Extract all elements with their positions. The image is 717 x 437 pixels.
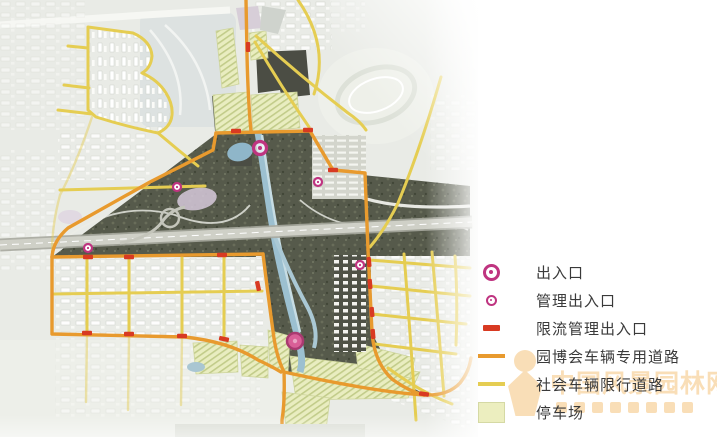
flow-limit-marker	[231, 129, 241, 133]
legend-label: 限流管理出入口	[536, 318, 648, 339]
flow-limit-marker	[82, 331, 92, 335]
flow-limit-marker	[217, 253, 227, 257]
flow-limit-marker	[369, 307, 374, 317]
legend-label: 管理出入口	[536, 290, 616, 311]
public-road-icon	[478, 382, 505, 386]
parking-lot-icon	[478, 402, 505, 423]
expo-road-icon	[478, 354, 505, 358]
flow-limit-marker	[177, 334, 187, 338]
flow-limit-marker	[124, 332, 134, 336]
flow-limit-marker	[303, 128, 313, 132]
flow-limit-icon	[483, 325, 500, 331]
flow-limit-marker	[83, 255, 93, 259]
legend-row-main-entrance: 出入口	[476, 258, 716, 286]
legend-label: 园博会车辆专用道路	[536, 346, 680, 367]
management-entrance-dot	[359, 264, 361, 266]
management-entrance-dot	[176, 186, 178, 188]
flow-limit-marker	[124, 255, 134, 259]
management-entrance-dot	[317, 181, 319, 183]
flow-limit-marker	[370, 329, 375, 339]
legend-row-parking: 停车场	[476, 398, 716, 426]
legend-row-flow-limit: 限流管理出入口	[476, 314, 716, 342]
legend-label: 社会车辆限行道路	[536, 374, 664, 395]
legend-row-management-entrance: 管理出入口	[476, 286, 716, 314]
legend-label: 停车场	[536, 402, 584, 423]
flow-limit-marker	[367, 279, 372, 289]
legend-row-expo-road: 园博会车辆专用道路	[476, 342, 716, 370]
main-entrance-center	[293, 339, 297, 343]
flow-limit-marker	[366, 257, 371, 267]
management-entrance-dot	[87, 247, 89, 249]
map-legend: 出入口 管理出入口 限流管理出入口 园博会车辆专用道路 社会车辆限行道路 停车场	[476, 258, 716, 426]
management-entrance-icon	[486, 295, 497, 306]
legend-row-public-road: 社会车辆限行道路	[476, 370, 716, 398]
flow-limit-marker	[328, 168, 338, 172]
flow-limit-marker	[246, 42, 250, 52]
legend-label: 出入口	[536, 262, 584, 283]
expo-traffic-plan-screenshot: 中国风景园林网 出入口 管理出入口 限流管理出入口 园博会车辆专用道路 社会车辆…	[0, 0, 717, 437]
main-entrance-dot	[258, 146, 262, 150]
main-entrance-icon	[483, 264, 500, 281]
